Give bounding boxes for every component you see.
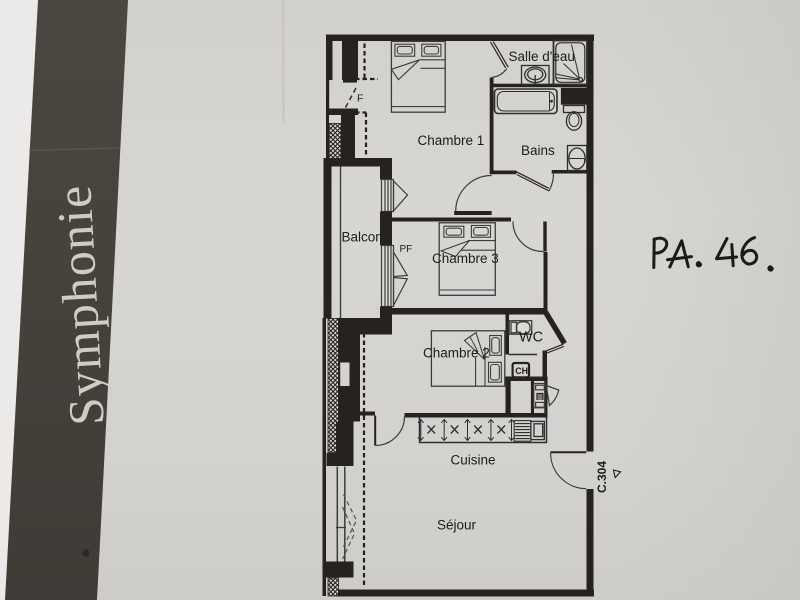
- svg-text:Cuisine: Cuisine: [451, 453, 496, 468]
- svg-text:Balcon: Balcon: [342, 230, 383, 245]
- svg-text:Séjour: Séjour: [437, 518, 477, 533]
- svg-text:C.304: C.304: [595, 461, 609, 493]
- svg-text:F: F: [357, 93, 363, 105]
- svg-text:CH: CH: [515, 366, 528, 376]
- svg-text:Salle d'eau: Salle d'eau: [509, 49, 575, 64]
- svg-text:PF: PF: [400, 244, 413, 255]
- svg-text:WC: WC: [519, 330, 543, 346]
- svg-text:Bains: Bains: [521, 143, 555, 158]
- svg-text:Chambre 1: Chambre 1: [418, 133, 485, 148]
- svg-text:Chambre 2: Chambre 2: [423, 346, 490, 361]
- svg-text:Chambre 3: Chambre 3: [432, 251, 499, 266]
